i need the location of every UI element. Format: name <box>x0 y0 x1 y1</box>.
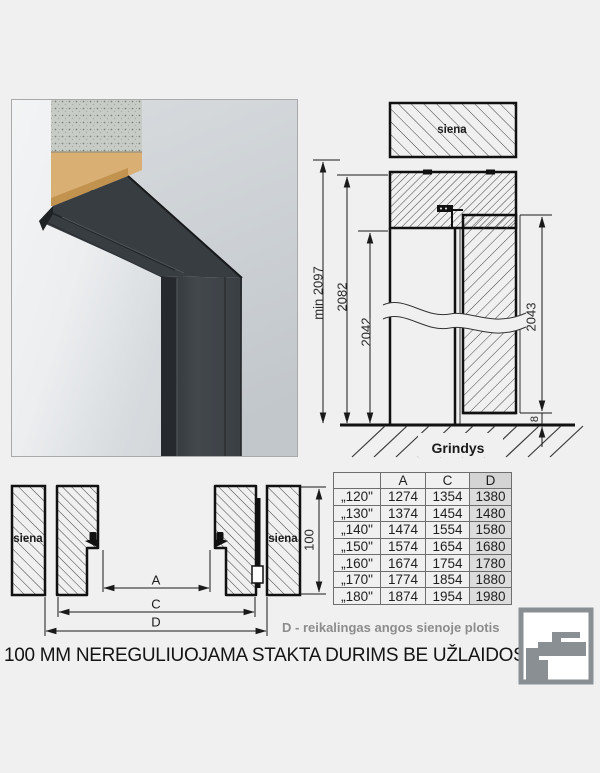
table-cell: 1480 <box>470 505 512 522</box>
wall-label-top: siena <box>437 124 466 136</box>
sheet-caption: 100 MM NEREGULIUOJAMA STAKTA DURIMS BE U… <box>4 645 518 667</box>
table-cell: 1654 <box>426 538 470 555</box>
table-cell: 1980 <box>470 588 512 605</box>
table-cell: „130" <box>334 505 381 522</box>
table-row: „140" 1474 1554 1580 <box>334 522 512 539</box>
table-cell: 1554 <box>426 522 470 539</box>
table-cell: „160" <box>334 555 381 572</box>
frame-corner-render <box>12 100 297 456</box>
table-cell: 1874 <box>381 588 426 605</box>
latch-plate <box>252 566 263 583</box>
door-leaf-section <box>463 215 516 413</box>
table-cell: „180" <box>334 588 381 605</box>
table-cell: 1374 <box>381 505 426 522</box>
col-header-a: A <box>381 473 426 489</box>
table-cell: 1574 <box>381 538 426 555</box>
table-cell: „120" <box>334 489 381 506</box>
table-cell: 1454 <box>426 505 470 522</box>
table-cell: 1774 <box>381 571 426 588</box>
table-cell: „150" <box>334 538 381 555</box>
table-row: „130" 1374 1454 1480 <box>334 505 512 522</box>
table-cell: „140" <box>334 522 381 539</box>
frame-corner-photo <box>11 99 298 457</box>
dim-leaf-height: 2043 <box>524 303 539 332</box>
dim-min-total-height: min 2097 <box>311 266 326 319</box>
seal-left <box>90 532 97 540</box>
dim-frame-height: 2082 <box>335 283 350 312</box>
dim-floor-gap: 8 <box>529 416 541 422</box>
frame-profile-logo-icon <box>518 607 594 685</box>
table-cell: 1680 <box>470 538 512 555</box>
table-row: „160" 1674 1754 1780 <box>334 555 512 572</box>
floor-label: Grindys <box>432 440 485 456</box>
col-header-size <box>334 473 381 489</box>
dim-frame-depth: 100 <box>302 529 317 551</box>
table-cell: 1854 <box>426 571 470 588</box>
manufacturer-logo <box>518 607 594 685</box>
table-cell: „170" <box>334 571 381 588</box>
table-cell: 1580 <box>470 522 512 539</box>
table-cell: 1954 <box>426 588 470 605</box>
dim-a-label: A <box>152 573 161 588</box>
dim-opening-height: 2042 <box>359 318 374 347</box>
table-cell: 1780 <box>470 555 512 572</box>
head-seal <box>437 205 451 212</box>
table-cell: 1674 <box>381 555 426 572</box>
table-cell: 1354 <box>426 489 470 506</box>
table-cell: 1380 <box>470 489 512 506</box>
wall-label-left: siena <box>13 533 42 545</box>
size-table-container: A C D „120" 1274 1354 1380 „130" 1374 14… <box>333 472 511 605</box>
d-dimension-note: D - reikalingas angos sienoje plotis <box>282 620 499 635</box>
col-header-c: C <box>426 473 470 489</box>
size-table: A C D „120" 1274 1354 1380 „130" 1374 14… <box>333 472 512 605</box>
table-row: „170" 1774 1854 1880 <box>334 571 512 588</box>
seal-right <box>217 532 224 540</box>
table-cell: 1880 <box>470 571 512 588</box>
dim-c-label: C <box>151 597 160 612</box>
table-header-row: A C D <box>334 473 512 489</box>
door-frame-spec-sheet: siena Grindys min 2097 2082 2042 2043 8 … <box>0 0 600 773</box>
table-cell: 1274 <box>381 489 426 506</box>
dim-d-label: D <box>151 615 160 630</box>
table-cell: 1754 <box>426 555 470 572</box>
fixing-clip <box>423 170 432 175</box>
table-row: „180" 1874 1954 1980 <box>334 588 512 605</box>
wall-label-right: siena <box>268 533 297 545</box>
table-row: „120" 1274 1354 1380 <box>334 489 512 506</box>
table-cell: 1474 <box>381 522 426 539</box>
table-row: „150" 1574 1654 1680 <box>334 538 512 555</box>
col-header-d: D <box>470 473 512 489</box>
fixing-clip <box>486 170 495 175</box>
